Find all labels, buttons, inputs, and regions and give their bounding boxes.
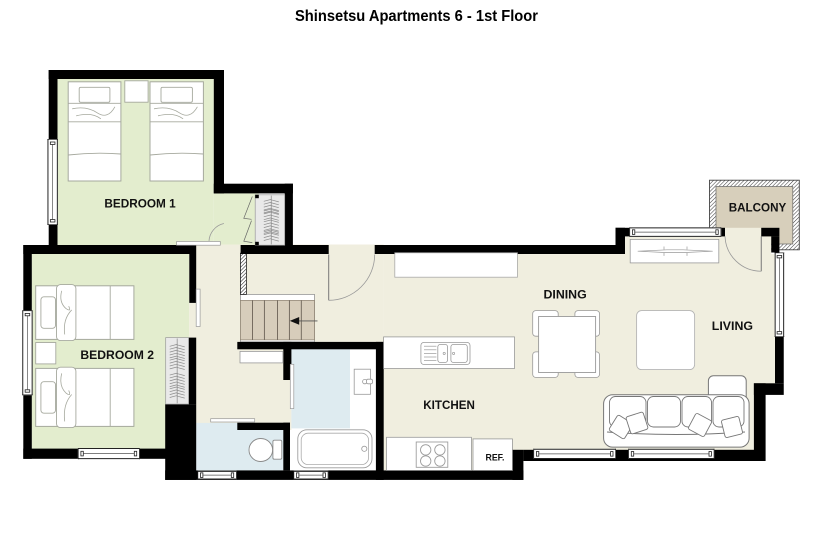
svg-text:BEDROOM 1: BEDROOM 1 <box>104 197 176 211</box>
svg-text:KITCHEN: KITCHEN <box>423 398 475 412</box>
svg-text:Shinsetsu Apartments 6 - 1st F: Shinsetsu Apartments 6 - 1st Floor <box>295 8 538 25</box>
svg-text:REF.: REF. <box>486 453 505 464</box>
svg-text:DINING: DINING <box>544 288 587 302</box>
svg-text:BALCONY: BALCONY <box>729 201 787 215</box>
svg-text:LIVING: LIVING <box>712 319 753 333</box>
svg-text:BEDROOM 2: BEDROOM 2 <box>80 348 154 362</box>
